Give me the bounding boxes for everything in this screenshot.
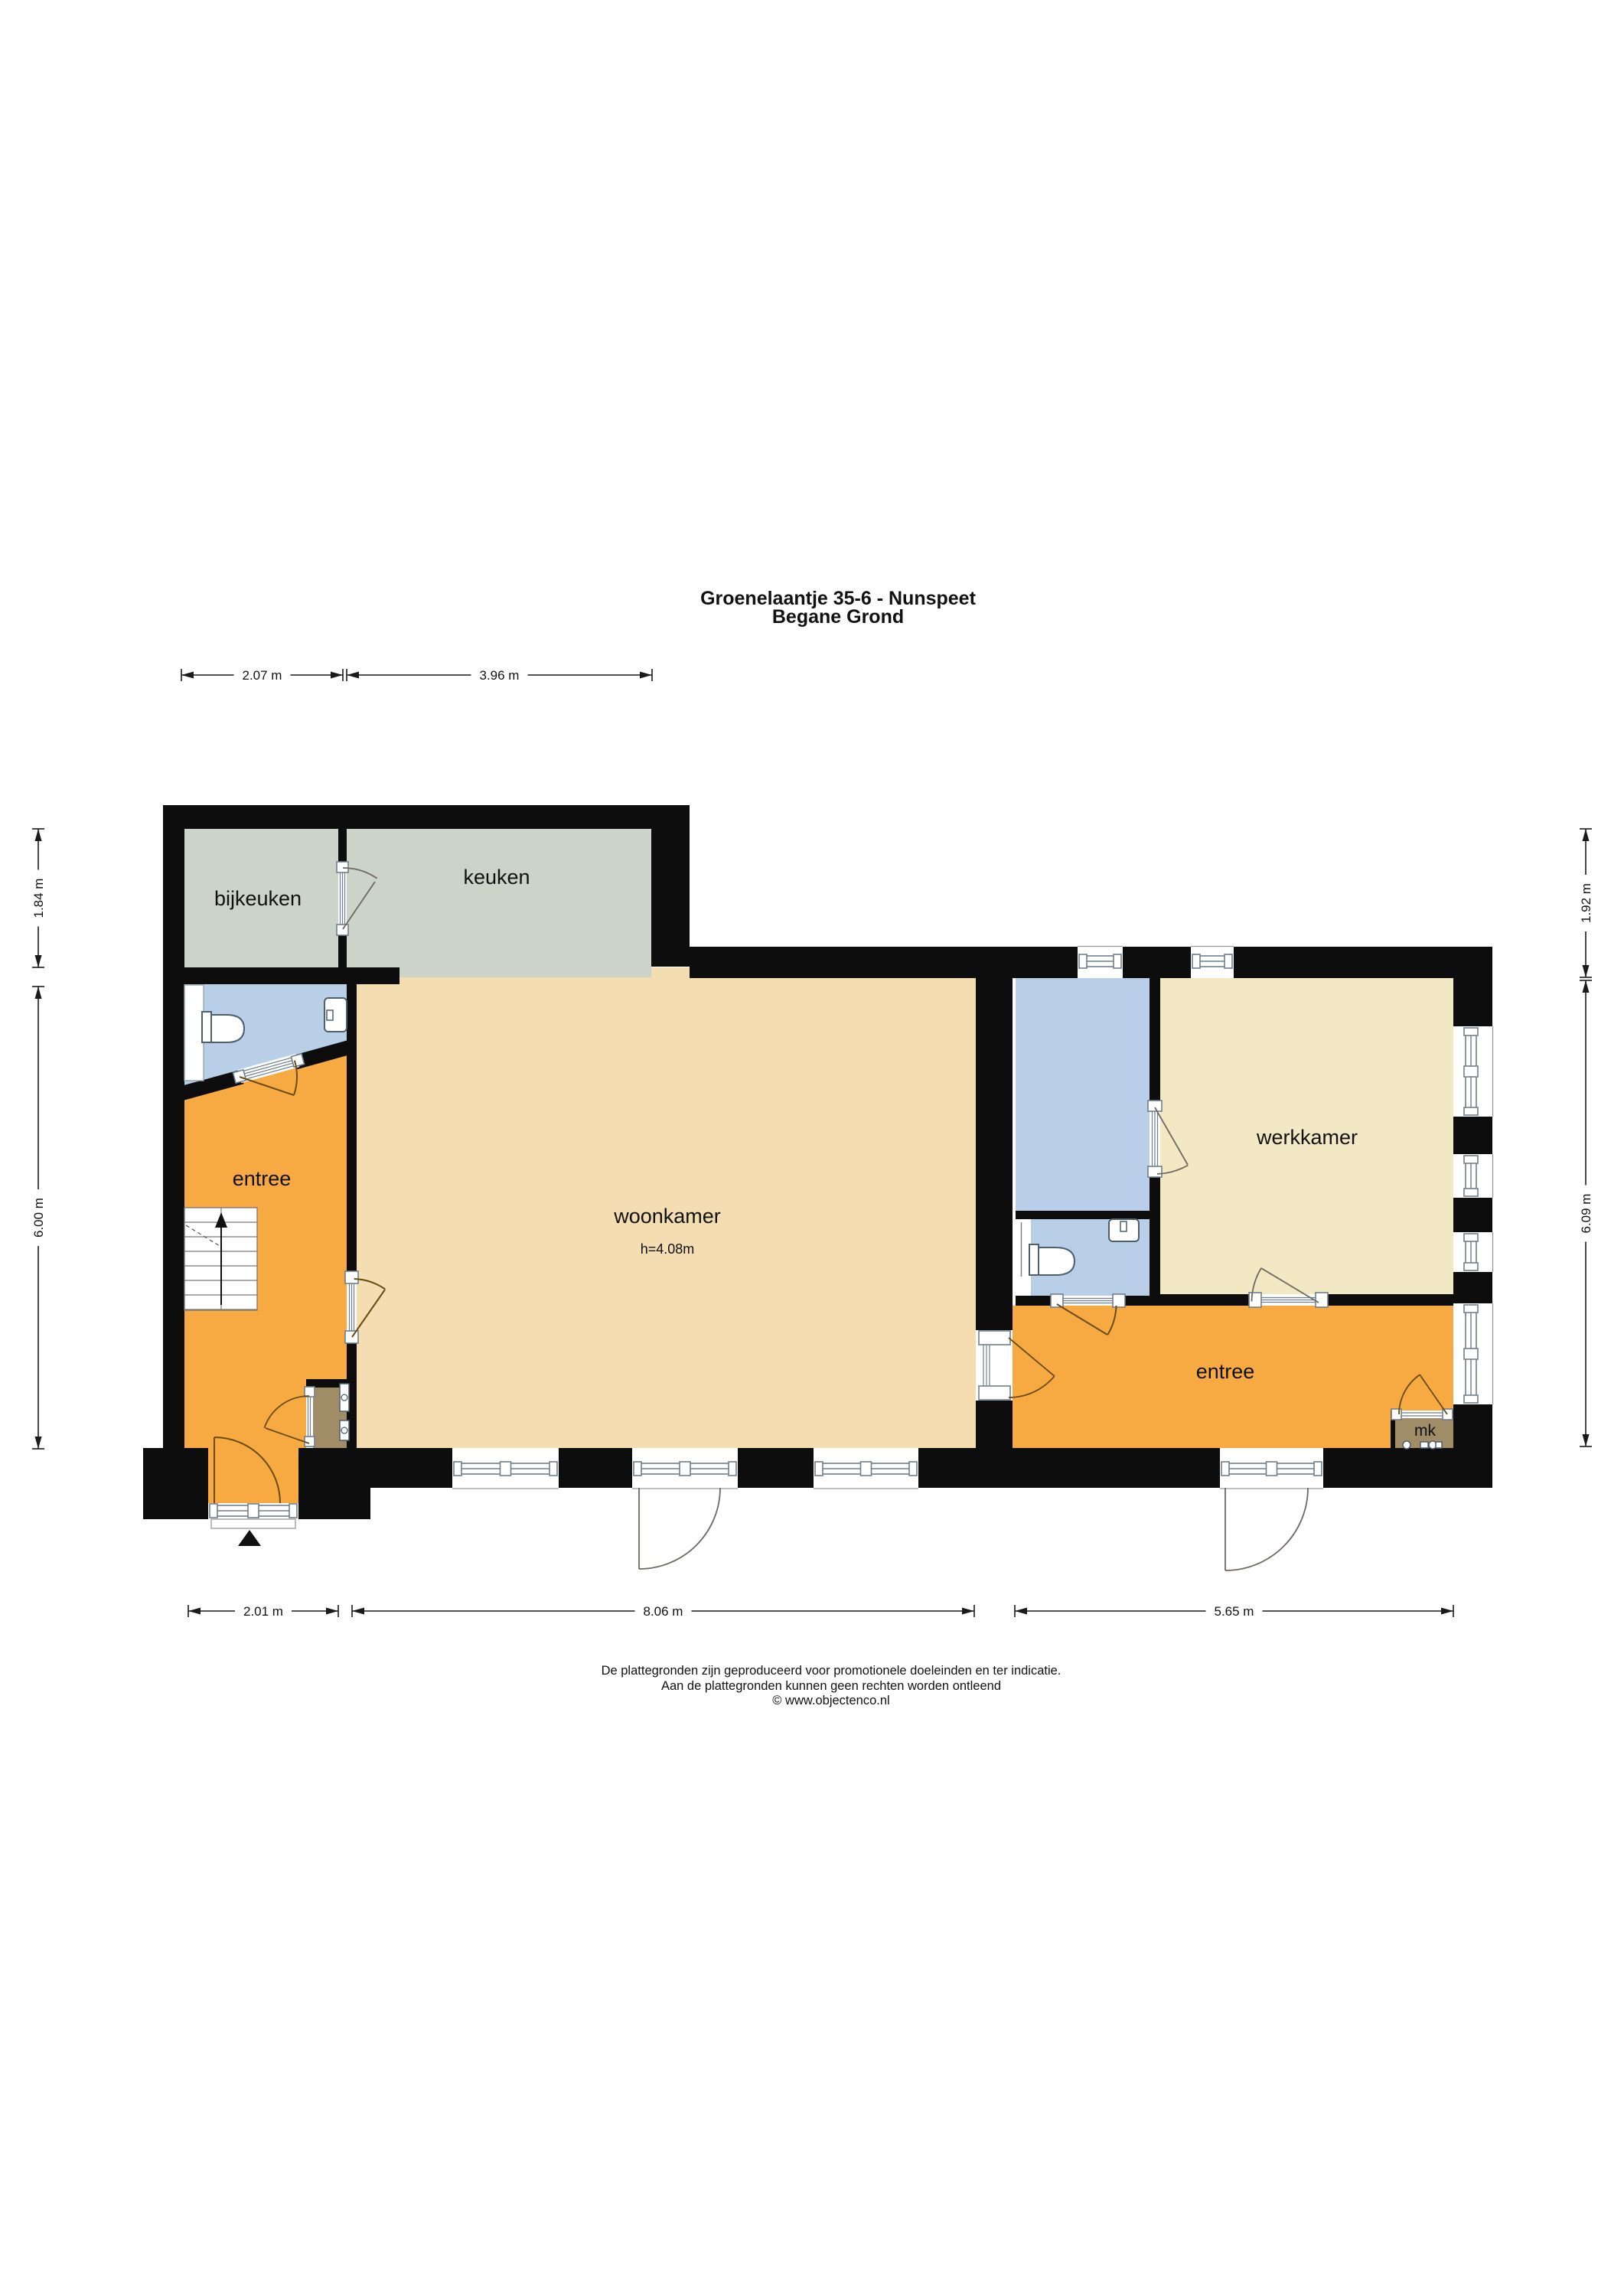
svg-text:mk: mk xyxy=(1414,1422,1436,1440)
svg-text:entree: entree xyxy=(1196,1360,1255,1383)
svg-text:2.01 m: 2.01 m xyxy=(243,1604,283,1619)
svg-text:3.96 m: 3.96 m xyxy=(480,668,520,683)
svg-text:bijkeuken: bijkeuken xyxy=(214,887,302,910)
svg-text:Aan de plattegronden kunnen ge: Aan de plattegronden kunnen geen rechten… xyxy=(661,1679,1001,1693)
svg-text:werkkamer: werkkamer xyxy=(1256,1126,1358,1149)
svg-text:Begane Grond: Begane Grond xyxy=(772,606,904,628)
svg-text:6.00 m: 6.00 m xyxy=(31,1198,46,1238)
svg-text:2.07 m: 2.07 m xyxy=(243,668,282,683)
svg-text:woonkamer: woonkamer xyxy=(613,1205,721,1228)
svg-text:6.09 m: 6.09 m xyxy=(1579,1194,1593,1234)
svg-text:8.06 m: 8.06 m xyxy=(644,1604,683,1619)
svg-text:© www.objectenco.nl: © www.objectenco.nl xyxy=(772,1694,889,1707)
svg-text:1.84 m: 1.84 m xyxy=(31,879,46,918)
svg-text:h=4.08m: h=4.08m xyxy=(641,1241,695,1257)
svg-text:keuken: keuken xyxy=(463,866,530,889)
svg-text:De plattegronden zijn geproduc: De plattegronden zijn geproduceerd voor … xyxy=(602,1664,1061,1678)
svg-text:entree: entree xyxy=(233,1167,292,1190)
svg-text:1.92 m: 1.92 m xyxy=(1579,883,1593,923)
svg-text:5.65 m: 5.65 m xyxy=(1215,1604,1254,1619)
